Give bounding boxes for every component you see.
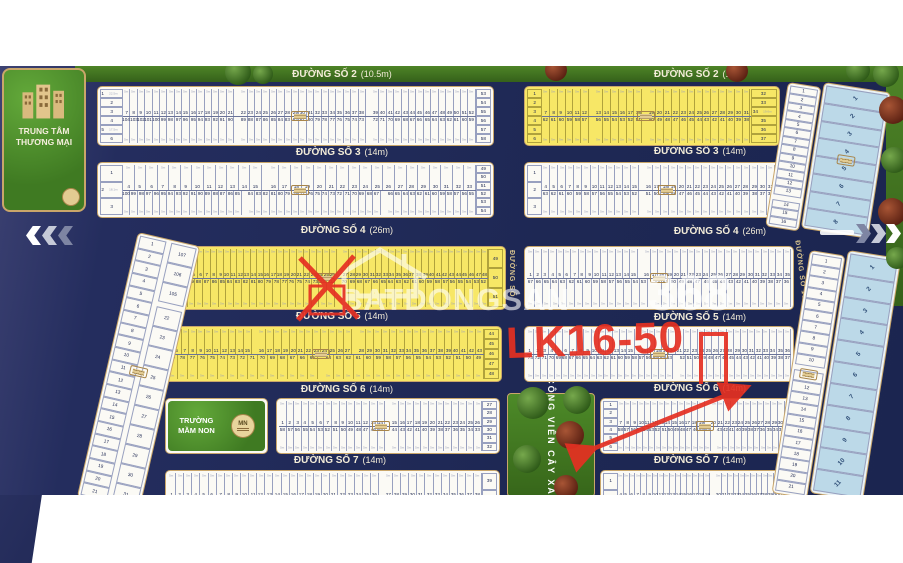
plot-dim: 5m [356,375,360,378]
plot-cell: 5m16 [645,165,653,190]
plot-dim: 5m [350,303,354,306]
plot-dim: 5m [191,331,195,334]
plot-number: 11 [207,184,212,189]
plot-dim: 5m [776,303,780,306]
plot-dim: 5m [713,139,717,142]
plot-number: 65 [424,117,429,122]
plot-cell: 5m33 [464,165,476,190]
plot-number: 29 [740,272,745,277]
plot-dim: 5m [356,403,360,406]
plot-cell: 5m10 [145,89,152,116]
plot-dim: 5m [444,167,448,170]
plot-cell: 5m4 [542,165,550,190]
plot-cell: 685m [402,117,409,144]
plot-number: 74 [322,191,327,196]
plot-cell: 5m35 [396,249,403,278]
plot-number: 1 [533,171,536,176]
plot-number: 84 [227,279,232,284]
plot-dim: 5m [453,447,457,450]
park-label: CÔNG VIÊN CÂY XANH [546,377,556,495]
plot-dim: 5m [249,211,253,214]
map-canvas: TRUNG TÂM THƯƠNG MẠI TRƯỜNG MẦM NON MN C… [0,66,903,495]
plot-cell: 5m41 [460,329,468,354]
plot-cell: 1 [527,89,542,98]
plot-cell: 5m22 [338,473,346,495]
plot-number: 66 [387,191,392,196]
plot-number: 17 [627,110,632,115]
plot-dim: 5m [771,375,775,378]
plot-dim: 5m [643,447,647,450]
plot-cell: 5m29 [740,249,747,278]
plot-number: 8 [552,110,555,115]
plot-dim: 5m [712,303,716,306]
plot-dim: 5m [543,91,547,94]
plot-dim: 5m [459,475,463,478]
plot-dim: 5m [704,303,708,306]
plot-dim: 5m [242,475,246,478]
plot-cell: 5m26 [270,89,277,116]
plot-dim: 5m [736,447,740,450]
plot-number: 105 [168,291,177,297]
plot-number: 53 [641,279,646,284]
plot-cell: 6 [527,134,542,143]
plot-dim: 5m [271,167,275,170]
road-label-horizontal: ĐƯỜNG SỐ 3(14m) [262,147,422,158]
plot-dim: 5m [553,303,557,306]
plot-dim: 5m [256,139,260,142]
plot-number: 20 [674,272,679,277]
chevron-right-icon [871,224,886,243]
road-name: ĐƯỜNG SỐ 3 [296,147,361,158]
plot-number: 1 [852,96,859,103]
plot-cell: 505m [670,279,678,308]
plot-cell: 5m9 [631,401,638,426]
plot-dim: 5m [751,475,755,478]
plot-cell: 865m [211,279,219,308]
plot-number: 30 [432,184,437,189]
plot-dim: 5m [671,167,675,170]
plot-number: 56 [450,279,455,284]
plot-cell: 825m [262,191,269,216]
plot-dim: 5m [300,211,304,214]
plot-number: 26 [372,492,377,495]
plot-cell: 5m45 [416,89,423,116]
plot-cell: 655m [543,279,551,308]
plot-cell: 5m32 [755,329,762,354]
plot-cell: 5m15 [391,401,399,426]
plot-number: 20 [290,348,295,353]
plot-dim: 5m [333,447,337,450]
plot-number: 56 [600,191,605,196]
plot-grid: 5m75m85m95m105m115m125m135m145m155m165m1… [618,401,791,451]
plot-dim: 5m [395,139,399,142]
plot-dim: 5m [220,375,224,378]
plot-cell: 725m [238,355,248,380]
plot-number: 6 [566,272,569,277]
plot-number: 36 [402,272,407,277]
plot-number: 54 [481,100,486,105]
plot-cell: 965m [182,117,189,144]
plot-number: 57 [582,117,587,122]
plot-number: 3 [110,204,113,209]
plot-cell: 495m [656,117,664,144]
plot-dim: 5m [238,251,242,254]
plot-number: 86 [212,279,217,284]
plot-number: 2 [178,492,181,495]
plot-cell: 5m15 [250,165,262,190]
plot-cell: 445m [718,279,726,308]
plot-number: 7 [573,272,576,277]
plot-dim: 5m [388,91,392,94]
plot-number: 40 [380,110,385,115]
plot-number: 40 [735,191,740,196]
plot-cell: 905m [227,117,234,144]
plot-number: 27 [712,110,717,115]
plot-dim: 5m [356,475,360,478]
plot-dim: 5m [744,91,748,94]
plot-cell: 635m [559,279,567,308]
plot-dim: 5m [286,139,290,142]
block-5-6-left: 1235m45m55m65m75m85m95m105m115m125m135m1… [140,326,502,382]
plot-cell: 5m4 [192,473,200,495]
road-label-horizontal: ĐƯỜNG SỐ 3(14m) [620,146,780,157]
plot-number: 53 [473,279,478,284]
plot-cell: 565m [404,355,414,380]
plot-dim: 5m [314,331,318,334]
plot-number: 34 [777,272,782,277]
plot-number: 8 [577,184,580,189]
plot-dim: 5m [407,447,411,450]
plot-number: 20 [716,492,721,495]
plot-dim: 5m [735,331,739,334]
plot-dim: 5m [736,91,740,94]
plot-cell: 5m40 [379,89,386,116]
plot-number: 11 [250,492,255,495]
plot-dim: 5m [430,331,434,334]
plot-dim: 5m [752,303,756,306]
plot-dim: 5m [430,403,434,406]
plot-dim: 5m [291,475,295,478]
plot-dim: 5m [271,139,275,142]
plot-dim: 5m [462,331,466,334]
plot-number: 21 [788,485,794,490]
plot-number: 18 [415,420,420,425]
plot-number: 70 [387,117,392,122]
plot-side-column: 394041 [482,473,497,495]
plot-dim: 19.6m [763,110,771,113]
plot-cell: 385m [777,355,784,380]
plot-cell: 975m [175,117,182,144]
plot-dim: 5m [427,475,431,478]
plot-dim: 5m [139,211,143,214]
plot-dim: 5m [754,447,758,450]
plot-number: 38 [438,348,443,353]
plot-number: 32 [762,272,767,277]
plot-dim: 5m [435,475,439,478]
plot-number: 100 [122,191,130,196]
plot-dim: 5m [418,91,422,94]
plot-number: 32 [315,110,320,115]
plot-number: 37 [784,355,789,360]
plot-number: 23 [696,272,701,277]
plot-dim: 5m [565,251,569,254]
road-label-horizontal: ĐƯỜNG SỐ 5(14m) [262,311,422,322]
plot-number: 67 [410,117,415,122]
plot-number: 33 [761,100,766,105]
plot-number: 71 [344,191,349,196]
plot-cell: 1 [603,401,618,409]
plot-dim: 5m [241,139,245,142]
plot-cell: 5m24 [710,165,718,190]
plot-number: 37 [352,110,357,115]
plot-cell: 485m [707,355,714,380]
plot-dim: 5m [440,91,444,94]
plot-dim: 5m [352,167,356,170]
plot-dim: 5m [363,167,367,170]
plot-dim: 5m [724,447,728,450]
plot-dim: 5m [620,91,624,94]
plot-cell: 5m9 [558,89,566,116]
plot-cell: 5m7 [566,165,574,190]
plot-cell: 5m21 [330,473,338,495]
plot-number: 53 [318,427,323,432]
plot-cell: 5m26 [371,473,379,495]
plot-dim: 5m [744,211,748,214]
plot-cell: 5m23 [691,329,698,354]
plot-dim: 5m [410,251,414,254]
plot-dim: 5m [476,475,480,478]
plot-number: 56 [617,279,622,284]
plot-cell: 5m26 [726,165,734,190]
plot-dim: 5m [278,139,282,142]
plot-number: 94 [168,191,173,196]
plot-dim: 5m [482,251,486,254]
plot-dim: 5m [653,475,657,478]
plot-cell: 5m19 [282,329,290,354]
plot-dim: 5m [682,475,686,478]
plot-dim: 5m [395,91,399,94]
plot-cell: 5m28 [727,329,734,354]
plot-dim: 5m [750,375,754,378]
plot-cell: 575m [442,279,450,308]
plot-number: 28 [394,492,399,495]
plot-dim: 5m [306,167,310,170]
plot-dim: 5m [154,91,158,94]
plot-number: 10 [837,457,846,466]
plot-cell: 5m22 [688,249,695,278]
plot-cell: 625m [446,117,453,144]
plot-number: 54 [426,355,431,360]
plot-dim: 5m [259,303,263,306]
plot-cell: 5m37 [429,329,437,354]
plot-dim: 5m [756,331,760,334]
plot-cell: 585m [582,191,590,216]
plot-cell: 5m25 [744,401,751,426]
plot-dim: 5m [338,211,342,214]
plot-cell: 5m38 [437,329,445,354]
plot-cell: 345m [467,427,475,452]
plot-number: 61 [411,279,416,284]
plot-cell: 5m25 [695,89,703,116]
plot-cell: 675m [364,279,372,308]
block-7-right: 1235m45m55m65m75m85m95m105m115m125m135m1… [600,470,794,495]
plot-number: 85 [219,279,224,284]
plot-cell: 5m29 [734,329,741,354]
plot-cell: 5m35 [777,329,784,354]
plot-cell: 1005m [123,191,130,216]
plot-dim: 5m [423,251,427,254]
plot-dim: 5m [705,475,709,478]
plot-dim: 5m [440,211,444,214]
plot-side-column: 495051525354 [476,165,491,215]
plot-dim: 5m [689,251,693,254]
plot-number: 55 [416,355,421,360]
plot-dim: 5m [180,375,184,378]
plot-dim: 5m [587,251,591,254]
plot-cell: 435m [399,427,407,452]
block-7-left: 5m15m25m35m45m55m65m75m85m95m105m115m125… [165,470,500,495]
plot-dim: 5m [631,251,635,254]
plot-dim: 5m [718,251,722,254]
plot-number: 30 [375,348,380,353]
plot-dim: 5m [689,139,693,142]
plot-cell: 5m12 [607,165,615,190]
plot-dim: 5m [389,303,393,306]
plot-cell: 5m22 [694,165,702,190]
plot-number: 41 [436,272,441,277]
plot-number: 31 [487,436,492,441]
plot-number: 18 [793,451,799,456]
plot-dim: 5m [688,303,692,306]
plot-dim: 5m [692,331,696,334]
plot-number: 24 [688,110,693,115]
plot-number: 12 [609,272,614,277]
plot-cell: 635m [439,117,446,144]
plot-number: 15 [282,492,287,495]
plot-dim: 5m [271,211,275,214]
plot-number: 50 [671,279,676,284]
plot-cell: 915m [190,191,197,216]
plot-dim: 5m [305,303,309,306]
plot-cell: 5m33 [763,329,770,354]
plot-number: 51 [661,427,666,432]
plot-dim: 5m [360,331,364,334]
plot-number: 31 [755,272,760,277]
plot-cell: 695m [268,355,278,380]
plot-dim: 5m [741,251,745,254]
plot-number: 30 [759,184,764,189]
plot-cell: 705m [351,191,358,216]
plot-dim: 5m [662,447,666,450]
plot-cell: 585m [600,279,608,308]
tree-icon [225,66,251,85]
plot-cell: 5m30 [374,329,382,354]
tree-icon [886,247,903,269]
plot-dim: 5m [315,91,319,94]
plot-cell: 455m [694,191,702,216]
plot-dim: 5m [725,403,729,406]
road-label-vertical: ĐƯỜNG SỐ [508,250,515,314]
plot-cell: 585m [446,191,453,216]
plot-cell: 475m [672,117,680,144]
plot-cell: 5m4 [302,401,310,426]
road-size: (26m) [370,225,394,235]
plot-dim: 5m [736,139,740,142]
plot-cell: 565m [599,191,607,216]
plot-cell: 5m5 [135,165,147,190]
plot-dim: 5m [375,211,379,214]
plot-number: 57 [592,191,597,196]
plot-number: 58 [447,191,452,196]
plot-dim: 5m [679,211,683,214]
plot-dim: 5m [213,139,217,142]
plot-number: 87 [204,279,209,284]
plot-dim: 5m [406,375,410,378]
plot-number: 15 [109,415,115,421]
plot-cell: 58 [476,134,491,143]
plot-number: 10 [195,184,200,189]
plot-number: 55 [469,191,474,196]
plot-dim: 5m [212,303,216,306]
plot-number: 44 [703,191,708,196]
plot-number: 8 [132,110,135,115]
plot-number: 6 [609,444,612,449]
plot-number: 27 [735,184,740,189]
plot-grid: 5m45m55m65m75m85m95m105m115m125m135m145m… [542,165,791,215]
plot-dim: 5m [440,139,444,142]
plot-number: 21 [722,492,727,495]
plot-number: 67 [374,191,379,196]
plot-cell: 865m [262,117,269,144]
plot-number: 61 [576,279,581,284]
plot-number: 25 [745,492,750,495]
plot-number: 31 [418,492,423,495]
plot-cell: 5m23 [349,165,361,190]
plot-cell: 5m25 [372,165,384,190]
plot-cell: 575m [608,279,616,308]
plot-number: 38 [416,272,421,277]
plot-cell: 555m [603,117,611,144]
page: LỘ NAM SÔNG T [0,0,903,563]
plot-cell: 5m45 [462,249,469,278]
plot-cell: 52 [476,190,491,198]
plot-dim: 5m [535,251,539,254]
plot-dim: 5m [551,139,555,142]
plot-dim: 5m [647,211,651,214]
plot-cell: 525m [627,117,635,144]
plot-number: 29 [421,184,426,189]
plot-dim: 5m [583,91,587,94]
plot-cell: 4 [100,116,123,125]
plot-number: 21 [437,420,442,425]
plot-dim: 5m [235,211,239,214]
plot-number: 16 [190,110,195,115]
plot-cell: 5m51 [461,89,468,116]
plot-number: 11 [214,348,219,353]
plot-cell: 40 [482,490,497,495]
plot-number: 37 [761,136,766,141]
plot-number: 1 [170,492,173,495]
plot-number: 54 [310,427,315,432]
road-name: ĐƯỜNG SỐ 4 [301,225,366,236]
plot-cell: 625m [542,117,550,144]
plot-number: 6 [319,420,322,425]
plot-number: 15 [245,348,250,353]
road-label-horizontal: ĐƯỜNG SỐ 6(14m) [620,383,780,394]
plot-number: 72 [373,117,378,122]
plot-dim: 5m [693,447,697,450]
plot-dim: 5m [293,91,297,94]
